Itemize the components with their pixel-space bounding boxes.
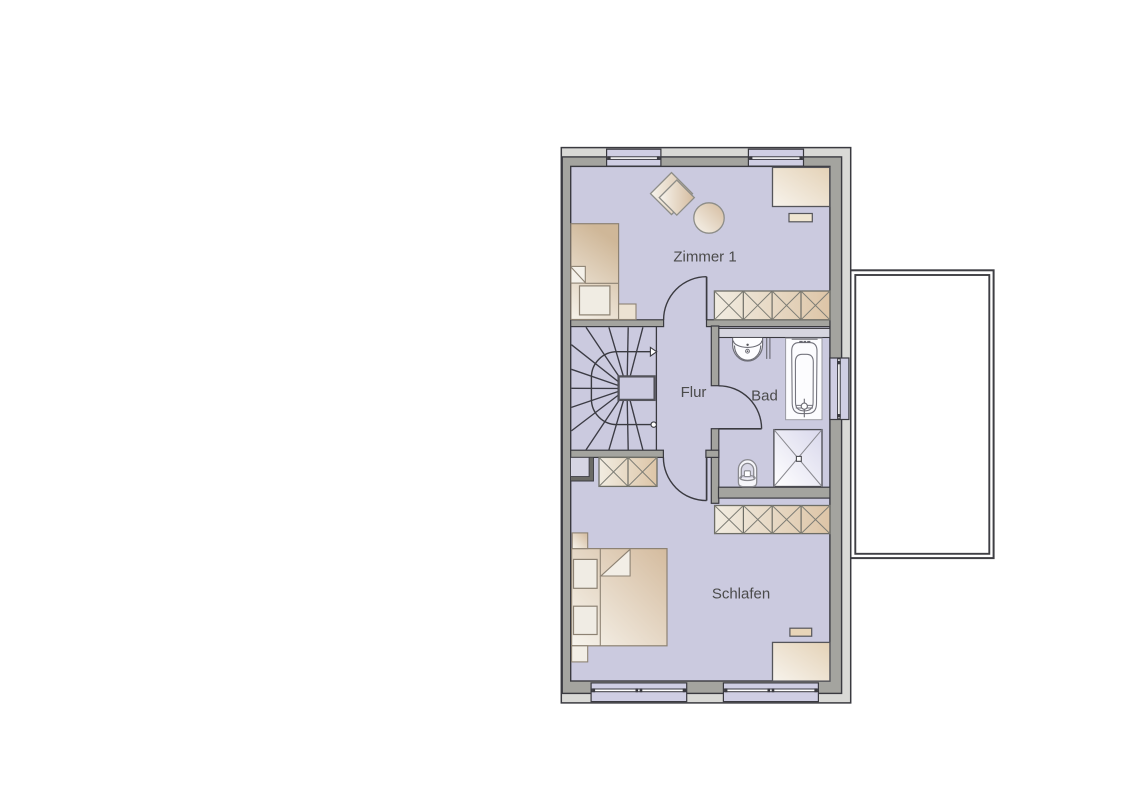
svg-text:Schlafen: Schlafen [712,586,770,603]
svg-text:Flur: Flur [681,384,707,401]
svg-text:Zimmer 1: Zimmer 1 [673,248,736,265]
svg-text:Bad: Bad [751,388,778,405]
